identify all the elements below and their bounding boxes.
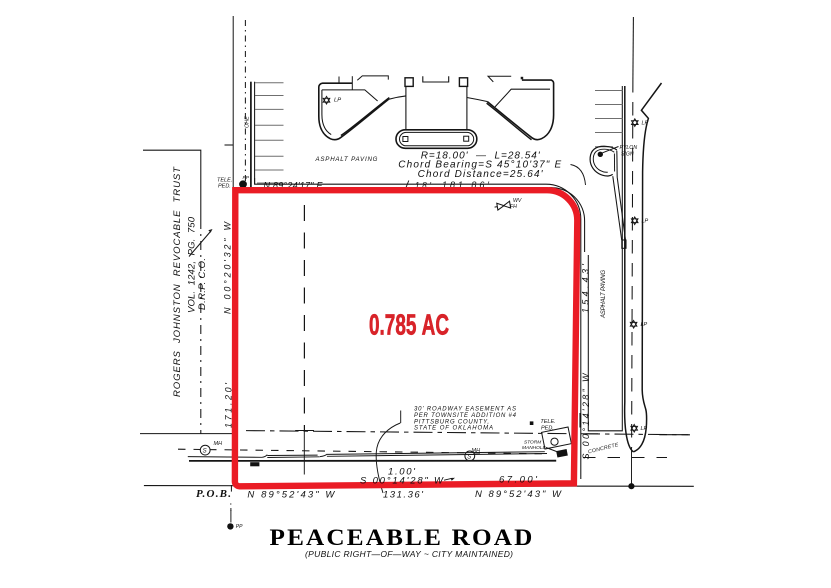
svg-text:PER TOWNSITE ADDITION #4: PER TOWNSITE ADDITION #4 bbox=[414, 413, 517, 419]
svg-text:0.785 AC: 0.785 AC bbox=[369, 310, 449, 342]
svg-text:S: S bbox=[467, 454, 471, 460]
svg-text:LP: LP bbox=[334, 98, 341, 104]
svg-text:PEACEABLE ROAD: PEACEABLE ROAD bbox=[270, 525, 535, 550]
svg-text:TELE.: TELE. bbox=[540, 419, 555, 425]
svg-text:VOL. 1242, PG. 750: VOL. 1242, PG. 750 bbox=[187, 216, 198, 313]
svg-text:S 00°14'28" W: S 00°14'28" W bbox=[581, 372, 591, 460]
svg-text:PP: PP bbox=[243, 175, 250, 181]
svg-text:STORM: STORM bbox=[524, 440, 541, 446]
svg-text:PP: PP bbox=[236, 524, 243, 530]
svg-text:30’ ROADWAY EASEMENT AS: 30’ ROADWAY EASEMENT AS bbox=[414, 407, 516, 413]
svg-text:PED.: PED. bbox=[218, 183, 231, 189]
svg-text:PITTSBURG COUNTY,: PITTSBURG COUNTY, bbox=[414, 419, 489, 425]
svg-text:S: S bbox=[203, 449, 207, 455]
svg-text:N 00°20'32" W: N 00°20'32" W bbox=[223, 221, 233, 315]
svg-text:FH: FH bbox=[510, 204, 517, 210]
svg-text:MH: MH bbox=[214, 441, 223, 447]
svg-text:MANHOLE: MANHOLE bbox=[522, 445, 547, 451]
svg-text:ASPHALT PAVING: ASPHALT PAVING bbox=[315, 156, 378, 163]
svg-text:SIGN: SIGN bbox=[621, 151, 634, 157]
svg-text:TELE.: TELE. bbox=[217, 177, 232, 183]
svg-text:N 89°52'43" W: N 89°52'43" W bbox=[475, 489, 562, 500]
svg-text:N 89°52'43" W: N 89°52'43" W bbox=[247, 490, 335, 501]
svg-text:S 00°14'28" W: S 00°14'28" W bbox=[360, 476, 444, 487]
svg-text:STATE OF OKLAHOMA: STATE OF OKLAHOMA bbox=[414, 426, 493, 432]
svg-text:154.43': 154.43' bbox=[581, 264, 591, 313]
svg-text:WV: WV bbox=[513, 198, 522, 204]
svg-text:ASPHALT PAVING: ASPHALT PAVING bbox=[601, 270, 607, 319]
svg-text:LP: LP bbox=[641, 322, 648, 328]
svg-text:D.R.P. C.O.: D.R.P. C.O. bbox=[197, 258, 208, 310]
svg-text:131.36': 131.36' bbox=[383, 490, 424, 501]
svg-text:LP: LP bbox=[641, 426, 648, 432]
svg-text:LP: LP bbox=[642, 121, 649, 127]
svg-text:ROGERS JOHNSTON REVOCABLE T: ROGERS JOHNSTON REVOCABLE TRUST bbox=[172, 166, 183, 397]
svg-text:P.O.B.: P.O.B. bbox=[196, 488, 231, 500]
svg-text:LP: LP bbox=[642, 219, 649, 225]
svg-text:OHE: OHE bbox=[245, 116, 251, 128]
svg-text:MH: MH bbox=[472, 448, 481, 454]
svg-text:(PUBLIC RIGHT—OF—WAY ~ CITY MA: (PUBLIC RIGHT—OF—WAY ~ CITY MAINTAINED) bbox=[305, 549, 513, 559]
svg-text:Chord Distance=25.64': Chord Distance=25.64' bbox=[418, 169, 544, 180]
svg-text:PYLON: PYLON bbox=[620, 145, 638, 151]
